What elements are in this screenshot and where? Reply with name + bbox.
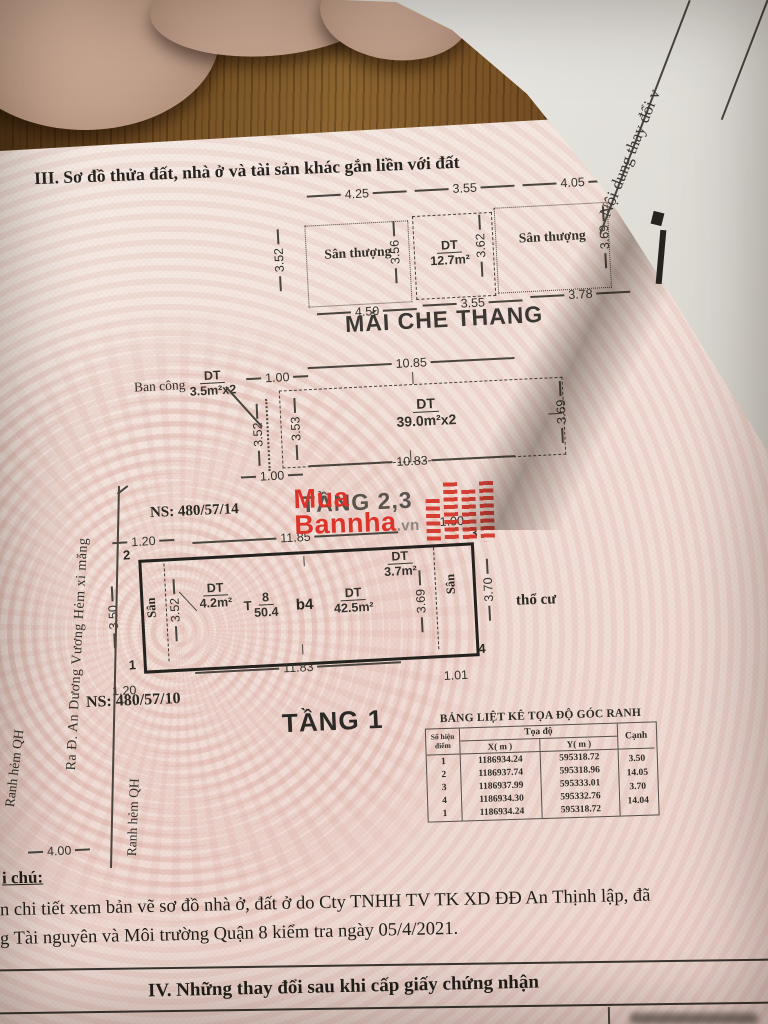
street-label: Ra Đ. An Dương Vương Hẻm xi măng [64,537,92,771]
edge-value: 14.04 [620,795,656,806]
balcony-label: Ban công [134,377,186,396]
house-number-prefix: T [243,598,252,613]
ns-bottom-label: NS: 480/57/10 [86,690,181,712]
point-cell: 3 [427,781,461,795]
divider-line [0,959,768,972]
floor1-title: TẦNG 1 [281,704,384,739]
balcony-area-label: DT3.5m²x2 [189,367,237,399]
house-number: T 850.4 [243,590,279,622]
corner-1: 1 [128,657,136,672]
land-type-label: thổ cư [516,591,557,609]
san-left-label: Sân [144,597,160,618]
edge-value: 14.05 [619,767,655,778]
cut-off-text [630,1013,758,1024]
col-header-edge: Cạnh [618,722,655,749]
dim-label: 4.00 [28,842,91,859]
balcony-callout: Ban công DT3.5m²x2 [133,367,236,402]
y-cell: 595318.72 [542,802,620,818]
section4-heading: IV. Những thay đổi sau khi cấp giấy chứn… [148,972,539,1003]
tick [302,644,304,654]
point-cell: 1 [428,807,462,821]
dim-label: 3.50 [105,586,122,649]
tick [303,556,305,566]
dim-label: 3.70 [480,558,497,621]
corner-2: 2 [123,547,131,562]
dim-label: 1.00 [246,369,309,386]
point-cell: 1 [427,755,461,769]
x-cell: 1186934.24 [462,805,542,821]
point-cell: 4 [428,794,462,808]
note-line-2: g Tài nguyên và Môi trường Quận 8 kiểm t… [0,919,458,950]
edge-column: 3.50 14.05 3.70 14.04 [619,748,657,815]
edge-value: 3.70 [620,781,656,792]
dim-label: 1.01 [443,668,468,683]
room-area-label: DT4.2m² [198,580,232,611]
san-right-label: Sân [443,574,459,595]
column-divider-line [608,1007,610,1024]
block-label: b4 [295,596,313,614]
dim-label: 3.69 [412,570,429,633]
note-label: i chú: [2,868,44,889]
floor1-plan: 1.20 11.85 1.00 Sân 3.52 DT4.2m² T 850.4… [138,542,480,673]
note-line-1: n chi tiết xem bản vẽ sơ đồ nhà ở, đất ở… [0,886,651,922]
dim-label: 3.52 [250,403,267,466]
photo-of-land-certificate: III. Sơ đồ thửa đất, nhà ở và tài sản kh… [0,0,768,1024]
dim-label: 3.52 [166,579,183,642]
room-area-label: DT42.5m² [333,585,374,617]
dim-label: 1.00 [241,467,304,484]
coordinate-table: BẢNG LIỆT KÊ TỌA ĐỘ GÓC RANH Số hiệuđiểm… [424,706,659,822]
point-cell: 2 [427,768,461,782]
ns-top-label: NS: 480/57/14 [150,501,239,522]
alley-boundary-label: Ranh hẻm QH [2,729,27,808]
edge-value: 3.50 [619,753,655,764]
dim-label: 3.53 [287,397,304,460]
dim-label: 1.20 [112,533,175,550]
corner-4: 4 [478,641,486,656]
col-header-point: Số hiệuđiểm [426,729,461,756]
inner-dashdot-line [433,547,439,649]
dim-label: 3.52 [271,229,288,292]
dim-label: 11.83 [195,655,402,680]
coordinate-table-grid: Số hiệuđiểm Tọa độ Cạnh X( m ) Y( m ) 1 … [425,721,660,822]
alley-boundary-label: Ranh hẻm QH [124,778,143,857]
